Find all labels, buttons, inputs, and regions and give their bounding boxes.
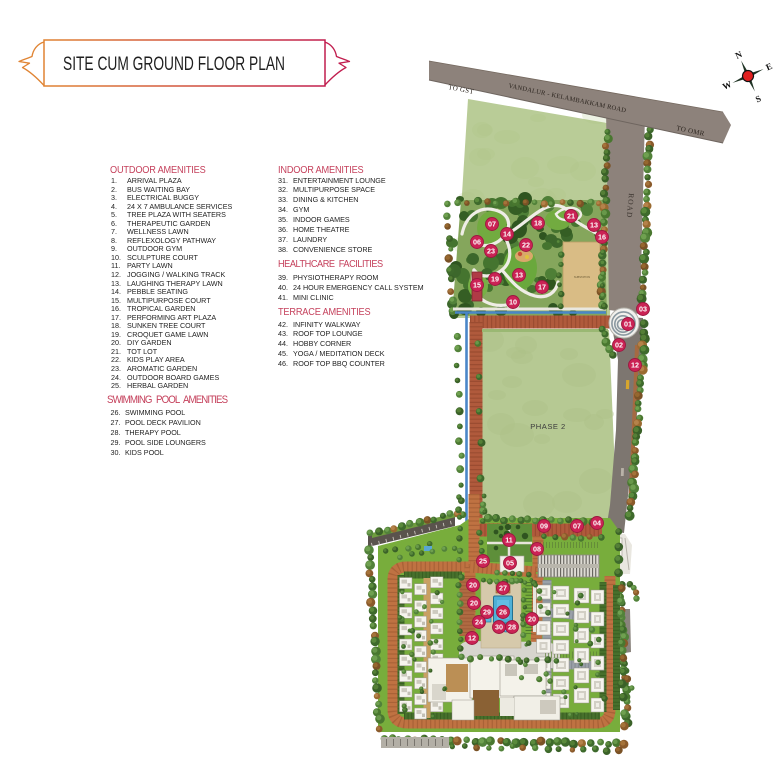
svg-text:12: 12 [468,634,476,643]
svg-text:04: 04 [593,519,601,528]
svg-text:05: 05 [506,559,514,568]
svg-text:12: 12 [631,361,639,370]
svg-text:SITE CUM GROUND FLOOR PLAN: SITE CUM GROUND FLOOR PLAN [63,54,285,75]
svg-text:13: 13 [590,221,598,230]
svg-text:30: 30 [495,623,503,632]
svg-text:08: 08 [533,545,541,554]
svg-text:20: 20 [469,581,477,590]
svg-text:14: 14 [503,230,511,239]
svg-text:13: 13 [515,271,523,280]
svg-text:17: 17 [538,283,546,292]
svg-text:29: 29 [483,608,491,617]
svg-text:24: 24 [475,618,483,627]
svg-text:25: 25 [479,557,487,566]
svg-text:26: 26 [499,608,507,617]
svg-text:27: 27 [499,584,507,593]
svg-text:07: 07 [488,220,496,229]
svg-text:20: 20 [528,615,536,624]
svg-text:10: 10 [509,298,517,307]
svg-text:19: 19 [491,275,499,284]
svg-text:02: 02 [615,341,623,350]
svg-text:03: 03 [639,305,647,314]
svg-text:15: 15 [473,281,481,290]
svg-text:09: 09 [540,522,548,531]
svg-text:SUBSTATION: SUBSTATION [574,275,590,279]
svg-text:S: S [754,93,763,104]
svg-text:23: 23 [487,247,495,256]
svg-text:18: 18 [534,219,542,228]
svg-text:07: 07 [573,522,581,531]
svg-text:11: 11 [505,536,513,545]
svg-text:01: 01 [624,320,632,329]
svg-text:22: 22 [522,241,530,250]
svg-text:06: 06 [473,238,481,247]
svg-text:W: W [721,79,733,92]
svg-text:PHASE 2: PHASE 2 [530,422,566,431]
svg-text:20: 20 [470,599,478,608]
svg-text:16: 16 [598,233,606,242]
svg-text:21: 21 [567,212,575,221]
svg-text:N: N [734,49,744,61]
svg-text:E: E [764,61,774,73]
svg-text:28: 28 [508,623,516,632]
